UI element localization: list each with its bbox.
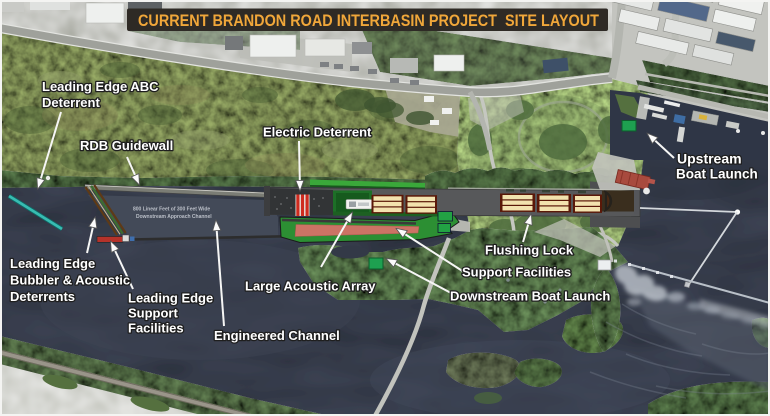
svg-text:Support Facilities: Support Facilities — [462, 265, 571, 280]
svg-text:Downstream Boat Launch: Downstream Boat Launch — [450, 289, 610, 304]
svg-text:Support: Support — [128, 306, 178, 321]
svg-text:Leading Edge ABC: Leading Edge ABC — [42, 79, 159, 94]
svg-text:Boat Launch: Boat Launch — [676, 167, 758, 182]
svg-text:Leading Edge: Leading Edge — [128, 291, 213, 306]
svg-text:Deterrent: Deterrent — [42, 95, 100, 110]
svg-text:Upstream: Upstream — [677, 151, 742, 167]
svg-text:Deterrents: Deterrents — [10, 289, 75, 304]
svg-text:Engineered Channel: Engineered Channel — [214, 328, 340, 343]
svg-text:Facilities: Facilities — [128, 321, 184, 336]
svg-text:Flushing Lock: Flushing Lock — [485, 243, 574, 258]
svg-text:800 Linear Feet of 300 Feet Wi: 800 Linear Feet of 300 Feet Wide — [133, 207, 210, 213]
svg-text:CURRENT BRANDON ROAD INTERBASI: CURRENT BRANDON ROAD INTERBASIN PROJECT … — [138, 11, 600, 30]
svg-text:RDB Guidewall: RDB Guidewall — [80, 138, 173, 153]
svg-text:Large Acoustic Array: Large Acoustic Array — [245, 279, 376, 294]
svg-text:Electric Deterrent: Electric Deterrent — [263, 125, 372, 140]
svg-text:Leading Edge: Leading Edge — [10, 256, 95, 271]
svg-text:Bubbler & Acoustic: Bubbler & Acoustic — [10, 273, 130, 288]
svg-text:Downstream Approach Channel: Downstream Approach Channel — [136, 214, 212, 220]
